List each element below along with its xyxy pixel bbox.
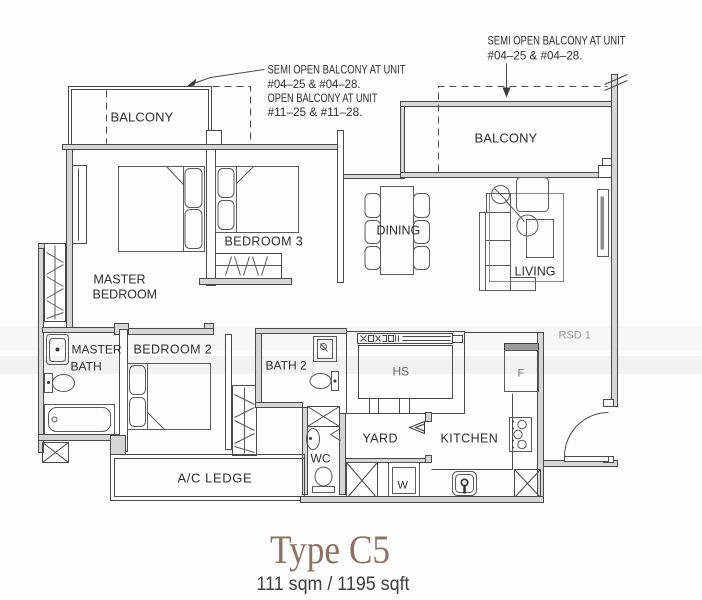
svg-text:111 sqm / 1195 sqft: 111 sqm / 1195 sqft: [257, 574, 411, 595]
svg-text:WC: WC: [311, 452, 331, 466]
svg-text:LIVING: LIVING: [515, 265, 556, 279]
svg-text:MASTER: MASTER: [94, 273, 146, 287]
svg-text:#11–25 & #11–28.: #11–25 & #11–28.: [268, 107, 363, 119]
svg-text:BEDROOM: BEDROOM: [93, 288, 158, 302]
svg-text:BATH: BATH: [71, 360, 102, 374]
svg-text:W: W: [398, 480, 409, 492]
svg-text:BEDROOM 2: BEDROOM 2: [134, 343, 213, 357]
svg-text:BALCONY: BALCONY: [475, 131, 538, 146]
svg-text:MASTER: MASTER: [72, 343, 122, 357]
svg-text:BATH 2: BATH 2: [266, 359, 307, 373]
svg-text:#04–25 & #04–28.: #04–25 & #04–28.: [488, 51, 583, 63]
svg-text:KITCHEN: KITCHEN: [441, 432, 499, 446]
svg-text:Type C5: Type C5: [270, 527, 390, 572]
svg-text:YARD: YARD: [363, 432, 398, 446]
svg-text:A/C LEDGE: A/C LEDGE: [178, 471, 253, 486]
svg-text:#04–25 & #04–28.: #04–25 & #04–28.: [268, 79, 361, 91]
svg-text:F: F: [518, 368, 525, 380]
svg-text:BALCONY: BALCONY: [111, 110, 174, 125]
svg-text:RSD 1: RSD 1: [559, 330, 591, 342]
svg-text:BEDROOM 3: BEDROOM 3: [225, 235, 304, 249]
svg-text:OPEN BALCONY AT UNIT: OPEN BALCONY AT UNIT: [268, 93, 378, 105]
svg-text:HS: HS: [393, 365, 410, 379]
svg-text:SEMI OPEN BALCONY AT UNIT: SEMI OPEN BALCONY AT UNIT: [268, 65, 406, 77]
svg-text:DINING: DINING: [377, 224, 421, 238]
svg-text:SEMI OPEN BALCONY AT UNIT: SEMI OPEN BALCONY AT UNIT: [488, 36, 626, 48]
